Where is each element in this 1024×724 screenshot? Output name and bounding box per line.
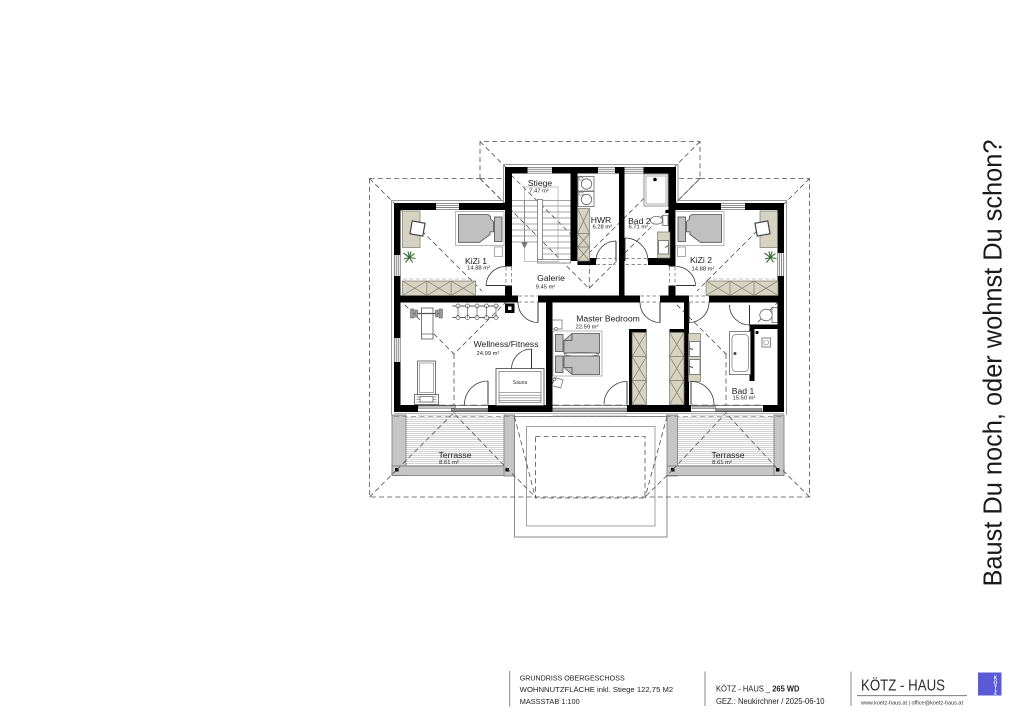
svg-text:6.28 m²: 6.28 m² (592, 225, 612, 231)
svg-text:Wellness/Fitness: Wellness/Fitness (474, 339, 539, 349)
svg-text:Terrasse: Terrasse (712, 450, 745, 460)
svg-text:9.45 m²: 9.45 m² (536, 285, 556, 291)
svg-text:14.88 m²: 14.88 m² (692, 267, 715, 273)
svg-text:KÖTZ - HAUS: KÖTZ - HAUS (861, 677, 945, 695)
svg-text:Sauna: Sauna (513, 380, 528, 386)
svg-text:Galerie: Galerie (537, 273, 565, 283)
svg-text:KiZi 1: KiZi 1 (465, 256, 487, 266)
svg-text:6.71 m²: 6.71 m² (628, 225, 648, 231)
svg-text:7.47 m²: 7.47 m² (529, 189, 549, 195)
svg-text:Bad 1: Bad 1 (732, 386, 755, 396)
svg-text:Master Bedroom: Master Bedroom (576, 314, 640, 324)
svg-text:24.99 m²: 24.99 m² (477, 351, 500, 357)
svg-text:8.61 m²: 8.61 m² (439, 460, 459, 466)
svg-text:Terrasse: Terrasse (439, 450, 472, 460)
svg-text:GRUNDRISS OBERGESCHOSS: GRUNDRISS OBERGESCHOSS (520, 674, 625, 683)
svg-text:8.61 m²: 8.61 m² (712, 460, 732, 466)
svg-text:Baust Du noch, oder wohnst Du: Baust Du noch, oder wohnst Du schon? (980, 140, 1008, 587)
svg-text:KiZi 2: KiZi 2 (690, 255, 712, 265)
svg-text:MASSSTAB 1:100: MASSSTAB 1:100 (520, 697, 580, 706)
svg-text:www.koetz-haus.at | office@koe: www.koetz-haus.at | office@koetz-haus.at (860, 700, 963, 706)
svg-text:Z: Z (994, 691, 997, 697)
svg-text:HWR: HWR (591, 215, 612, 225)
svg-text:WOHNNUTZFLÄCHE inkl. Stiege 12: WOHNNUTZFLÄCHE inkl. Stiege 122,75 M2 (520, 685, 674, 694)
svg-text:KÖTZ - HAUS _ 265 WD: KÖTZ - HAUS _ 265 WD (716, 685, 800, 694)
svg-text:14.88 m²: 14.88 m² (467, 266, 490, 272)
svg-text:GEZ.: Neukirchner / 2025-06-10: GEZ.: Neukirchner / 2025-06-10 (716, 697, 825, 706)
svg-text:22.59 m²: 22.59 m² (576, 325, 599, 331)
svg-text:Stiege: Stiege (528, 178, 553, 188)
svg-text:15.50 m²: 15.50 m² (733, 396, 756, 402)
